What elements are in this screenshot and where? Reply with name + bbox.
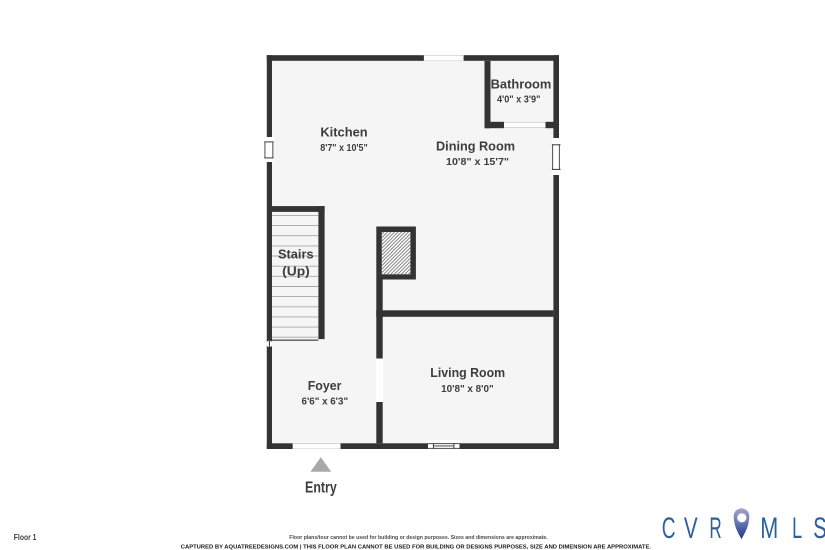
svg-text:R: R bbox=[709, 512, 721, 545]
svg-text:CAPTURED BY AQUATREEDESIGNS.CO: CAPTURED BY AQUATREEDESIGNS.COM | THIS F… bbox=[181, 544, 652, 550]
svg-text:M: M bbox=[760, 512, 778, 545]
svg-text:S: S bbox=[813, 512, 825, 545]
svg-text:Entry: Entry bbox=[305, 480, 337, 497]
svg-text:Dining Room: Dining Room bbox=[436, 138, 515, 153]
svg-text:6'6" x 6'3": 6'6" x 6'3" bbox=[302, 396, 349, 408]
svg-text:Foyer: Foyer bbox=[308, 378, 342, 393]
svg-text:Floor plans/tour cannot be use: Floor plans/tour cannot be used for buil… bbox=[289, 535, 548, 541]
svg-text:10'8" x 15'7": 10'8" x 15'7" bbox=[446, 156, 509, 168]
svg-text:Floor 1: Floor 1 bbox=[14, 532, 37, 542]
svg-text:Stairs: Stairs bbox=[278, 248, 314, 262]
svg-text:C: C bbox=[662, 512, 676, 545]
svg-text:V: V bbox=[684, 512, 698, 545]
svg-text:Living Room: Living Room bbox=[430, 365, 505, 380]
svg-text:Kitchen: Kitchen bbox=[320, 124, 367, 139]
svg-text:8'7" x 10'5": 8'7" x 10'5" bbox=[320, 142, 368, 154]
svg-text:L: L bbox=[792, 512, 802, 545]
svg-text:4'0" x 3'9": 4'0" x 3'9" bbox=[497, 94, 541, 106]
svg-text:10'8" x 8'0": 10'8" x 8'0" bbox=[441, 383, 494, 395]
svg-text:Bathroom: Bathroom bbox=[491, 76, 552, 91]
svg-text:(Up): (Up) bbox=[282, 265, 310, 279]
